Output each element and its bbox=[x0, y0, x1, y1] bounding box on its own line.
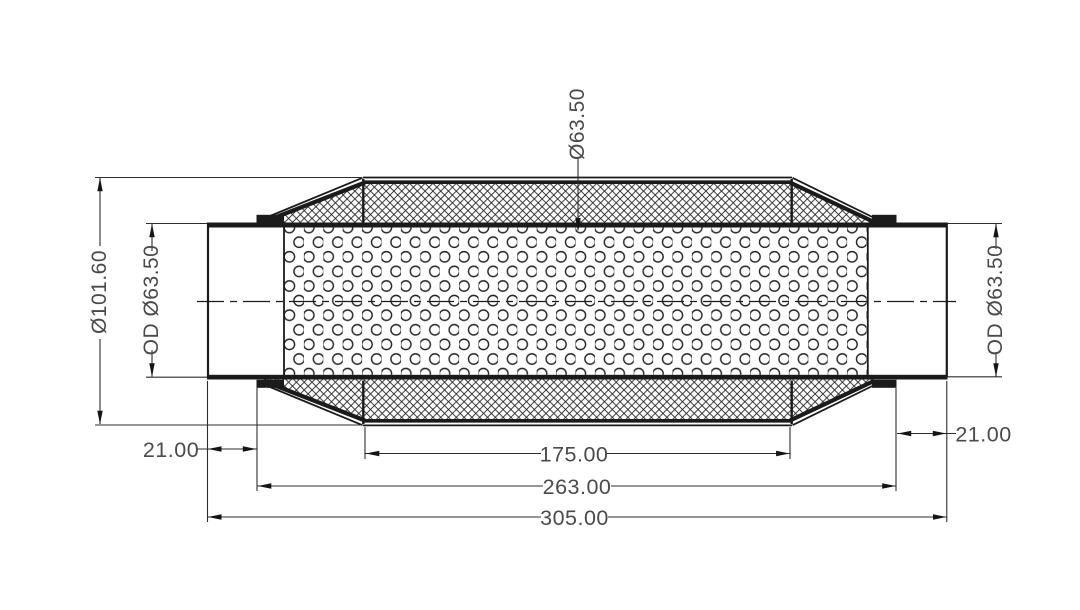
dim-label-inlet-od: OD Ø63.50 bbox=[140, 245, 163, 356]
dim-label-core-diameter: Ø63.50 bbox=[566, 88, 589, 160]
dim-label-outlet-od: OD Ø63.50 bbox=[984, 245, 1007, 356]
dim-label-overall-diameter: Ø101.60 bbox=[88, 250, 111, 334]
muffler-technical-drawing: Ø101.60 OD Ø63.50 Ø63.50 OD Ø63.50 21.00… bbox=[0, 0, 1080, 610]
dim-label-body-length: 263.00 bbox=[543, 475, 612, 499]
dim-label-outlet-length: 21.00 bbox=[955, 423, 1011, 447]
dim-label-overall-length: 305.00 bbox=[540, 506, 609, 530]
drawing-svg: Ø101.60 OD Ø63.50 Ø63.50 OD Ø63.50 21.00… bbox=[0, 0, 1080, 610]
tube-wall-bottom bbox=[207, 375, 948, 380]
dim-label-perforated-length: 175.00 bbox=[540, 443, 609, 467]
dim-label-inlet-length: 21.00 bbox=[143, 438, 199, 462]
